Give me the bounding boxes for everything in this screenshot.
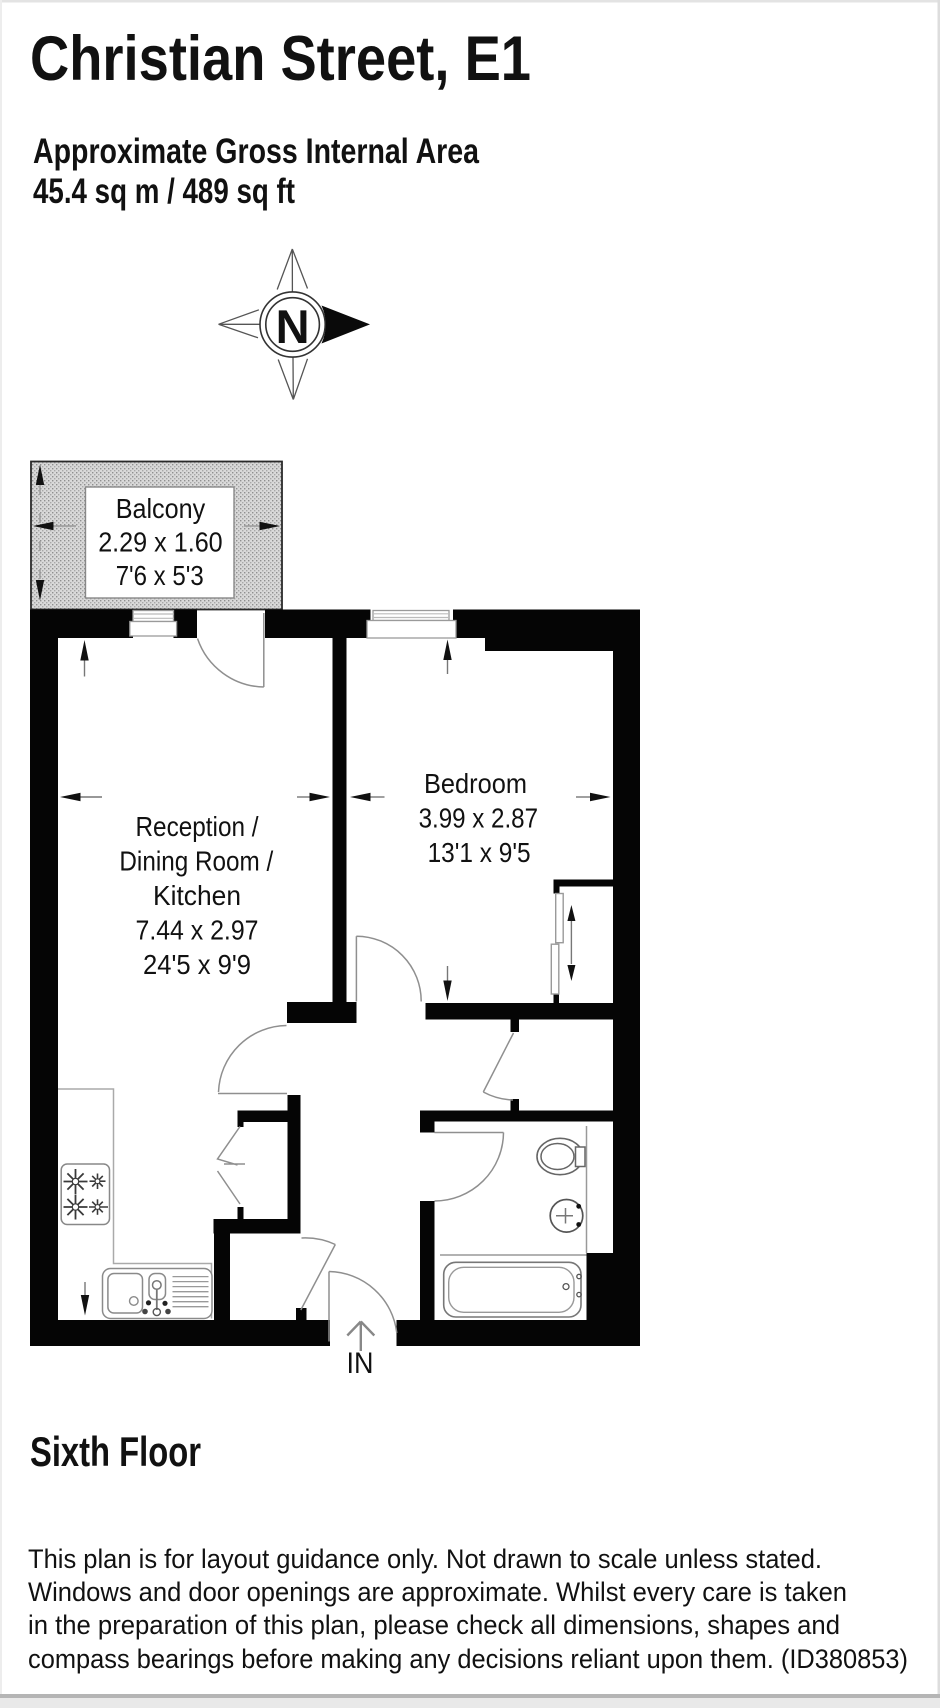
svg-text:Sixth Floor: Sixth Floor [30, 1428, 201, 1475]
svg-text:This plan is for layout guidan: This plan is for layout guidance only. N… [28, 1544, 822, 1574]
svg-text:Dining Room /: Dining Room / [119, 846, 273, 877]
svg-text:3.99 x 2.87: 3.99 x 2.87 [419, 803, 538, 834]
svg-text:Bedroom: Bedroom [424, 768, 527, 799]
svg-text:13'1 x 9'5: 13'1 x 9'5 [428, 837, 531, 868]
svg-text:45.4 sq m / 489 sq ft: 45.4 sq m / 489 sq ft [33, 172, 295, 211]
svg-text:Kitchen: Kitchen [153, 880, 241, 911]
svg-text:7.44 x 2.97: 7.44 x 2.97 [136, 915, 259, 946]
svg-text:IN: IN [347, 1347, 374, 1380]
svg-text:Reception /: Reception / [136, 811, 259, 842]
svg-text:24'5 x 9'9: 24'5 x 9'9 [143, 949, 251, 980]
svg-text:N: N [276, 300, 310, 353]
svg-text:Windows and door openings are: Windows and door openings are approximat… [28, 1577, 847, 1607]
svg-text:2.29 x 1.60: 2.29 x 1.60 [98, 527, 223, 558]
svg-text:Approximate Gross Internal Are: Approximate Gross Internal Area [33, 132, 479, 171]
svg-text:Balcony: Balcony [116, 493, 206, 524]
svg-text:Christian Street, E1: Christian Street, E1 [30, 24, 531, 94]
svg-text:7'6 x 5'3: 7'6 x 5'3 [116, 560, 204, 591]
svg-text:compass bearings before making: compass bearings before making any decis… [28, 1644, 908, 1674]
svg-text:in the preparation of this pla: in the preparation of this plan, please … [28, 1610, 840, 1640]
